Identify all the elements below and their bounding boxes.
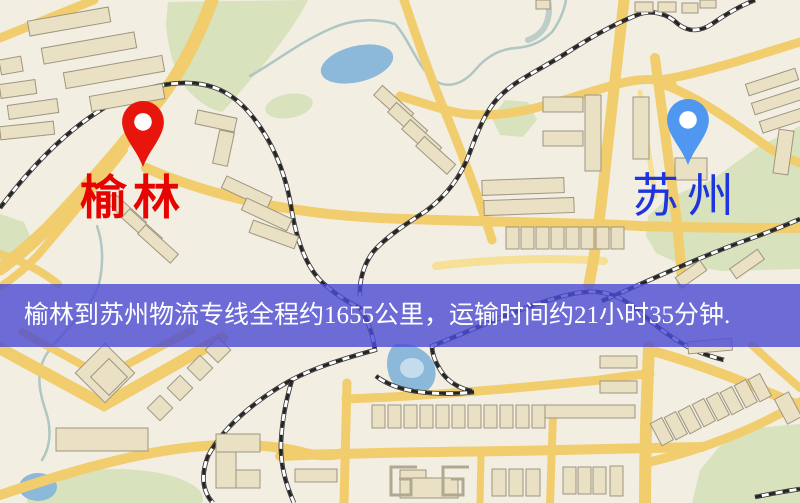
origin-city-label: 榆林 (80, 176, 186, 223)
map-screenshot: 榆林 苏州 榆林到苏州物流专线全程约1655公里，运输时间约21小时35分钟. (0, 0, 800, 503)
destination-city-label: 苏州 (632, 174, 742, 221)
route-info-banner: 榆林到苏州物流专线全程约1655公里，运输时间约21小时35分钟. (0, 284, 800, 347)
destination-pin-icon[interactable] (666, 97, 710, 167)
map-canvas (0, 0, 800, 503)
route-info-text: 榆林到苏州物流专线全程约1655公里，运输时间约21小时35分钟. (24, 302, 730, 329)
origin-pin-icon[interactable] (121, 99, 165, 169)
